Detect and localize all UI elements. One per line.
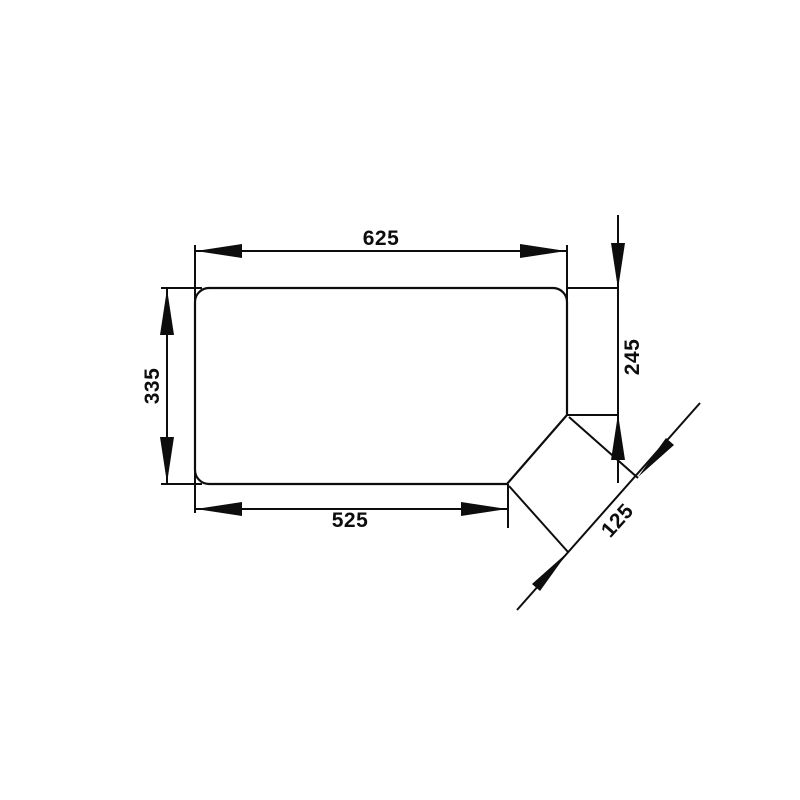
extension-line-125-upper	[569, 417, 638, 478]
arrowhead-625-left	[196, 244, 242, 258]
technical-drawing-canvas: 625 335 245 525 125	[0, 0, 800, 800]
arrowhead-125-lowerleft	[638, 438, 674, 477]
dimension-diagram: 625 335 245 525 125	[0, 0, 800, 800]
dimension-label-right-height: 245	[621, 339, 644, 376]
arrowhead-525-right	[461, 502, 507, 516]
dimension-label-corner-cut: 125	[597, 499, 639, 542]
arrowhead-125-upperright	[532, 552, 568, 591]
arrowhead-245-up	[611, 414, 625, 460]
arrowhead-245-down	[611, 243, 625, 289]
dimension-label-left-height: 335	[141, 368, 164, 405]
arrowhead-525-left	[196, 502, 242, 516]
part-outline	[195, 288, 567, 484]
arrowhead-335-down	[160, 437, 174, 483]
extension-line-125-lower	[509, 486, 568, 552]
dimension-label-bottom-width: 525	[332, 509, 369, 532]
arrowhead-625-right	[520, 244, 566, 258]
dimension-label-top-width: 625	[363, 227, 400, 250]
arrowhead-335-up	[160, 289, 174, 335]
